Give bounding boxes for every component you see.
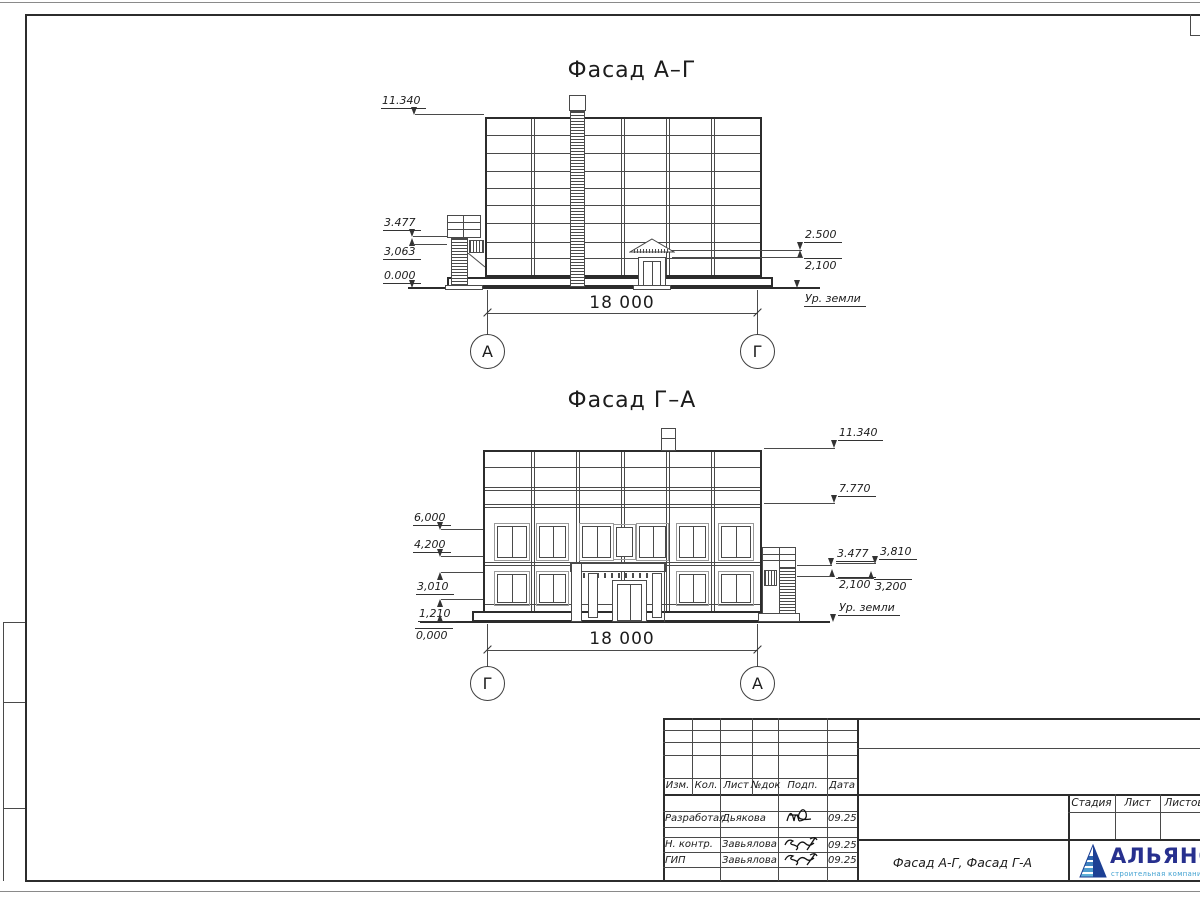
drawing-sheet: Фасад А–Г xyxy=(0,0,1200,900)
signature xyxy=(781,803,825,825)
sign-name: Завьялова xyxy=(722,839,777,850)
title-block-line xyxy=(663,827,857,828)
signature xyxy=(781,852,825,866)
sign-name: Завьялова xyxy=(722,855,777,866)
title-block-line xyxy=(663,730,857,731)
title-block-line xyxy=(663,837,857,838)
title-block-line xyxy=(663,852,857,853)
change-col-header: Подп. xyxy=(778,780,827,791)
sign-date: 09.25 xyxy=(828,855,856,866)
stage-header: Стадия xyxy=(1068,797,1115,809)
sheet-header: Лист xyxy=(1115,797,1160,809)
change-col-header: №док xyxy=(751,780,778,791)
change-col-header: Изм. xyxy=(663,780,692,791)
title-block-line xyxy=(663,778,857,779)
title-block-line xyxy=(663,755,857,756)
sign-role: ГИП xyxy=(665,855,686,866)
title-block-line xyxy=(857,839,1200,841)
title-block-line xyxy=(857,748,1200,749)
sign-role: Н. контр. xyxy=(665,839,713,850)
change-col-header: Дата xyxy=(827,780,857,791)
title-block-line xyxy=(663,811,857,812)
signature xyxy=(781,836,825,851)
sheets-total-header: Листов xyxy=(1160,797,1200,809)
company-logo-icon xyxy=(1079,844,1107,879)
sign-role: Разработал xyxy=(665,813,726,824)
company-logo-name: АЛЬЯНС xyxy=(1110,844,1200,868)
change-col-header: Лист xyxy=(720,780,752,791)
title-block-line xyxy=(1068,812,1200,813)
title-block-line xyxy=(663,867,857,868)
sign-date: 09.25 xyxy=(828,813,856,824)
title-block-line xyxy=(663,718,1200,720)
company-logo-subtitle: строительная компания xyxy=(1111,870,1200,878)
title-block: Изм. Кол. Лист №док Подп. Дата Разработа… xyxy=(0,0,1200,900)
change-col-header: Кол. xyxy=(692,780,720,791)
drawing-title: Фасад А-Г, Фасад Г-А xyxy=(859,855,1066,870)
sign-date: 09.25 xyxy=(828,840,856,851)
sign-name: Дьякова xyxy=(722,813,766,824)
title-block-line xyxy=(663,794,1200,796)
title-block-line xyxy=(663,742,857,743)
